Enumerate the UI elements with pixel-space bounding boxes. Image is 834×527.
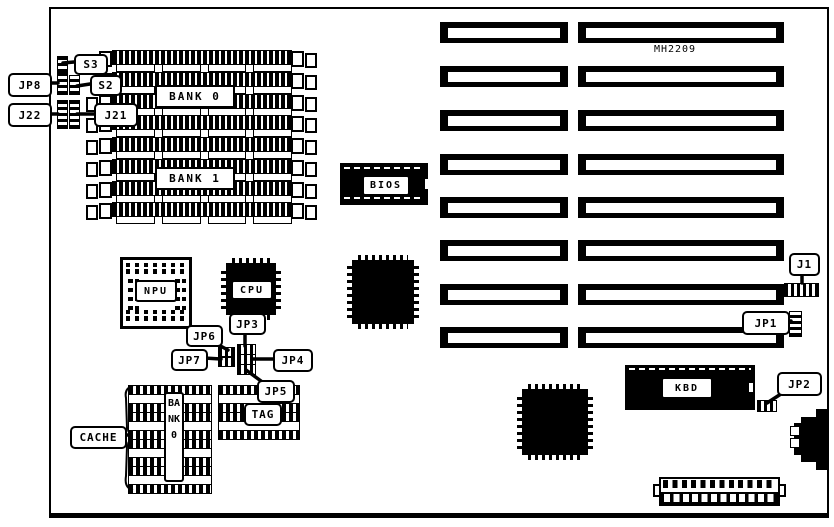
bios-chip: BIOS xyxy=(340,163,428,205)
board-part-number: MH2209 xyxy=(640,44,710,55)
cache-bank0-vertical-label: BANK0 xyxy=(164,392,184,482)
jp8-jumper xyxy=(57,73,68,95)
jp3-callout: JP3 xyxy=(229,313,266,335)
kbd-label: KBD xyxy=(661,377,713,399)
isa-slot-segment xyxy=(578,240,784,261)
io-controller-chip xyxy=(522,389,588,455)
isa-slot-segment xyxy=(578,110,784,131)
simm-socket-row xyxy=(86,50,318,73)
kbd-chip: KBD xyxy=(625,365,755,410)
din-keyboard-connector xyxy=(801,417,819,462)
j1-connector xyxy=(784,283,819,297)
j22-jumper xyxy=(57,100,68,129)
npu-label: NPU xyxy=(135,280,177,302)
isa-slot-segment xyxy=(440,22,568,43)
s3-jumper xyxy=(57,56,68,73)
j1-callout: J1 xyxy=(789,253,820,276)
jp7-callout: JP7 xyxy=(171,349,208,371)
j22-callout: J22 xyxy=(8,103,52,127)
jp5-callout: JP5 xyxy=(257,380,295,403)
j21-jumper xyxy=(69,100,80,129)
bios-label: BIOS xyxy=(362,175,410,196)
isa-slot-segment xyxy=(440,284,568,305)
isa-slot-segment xyxy=(578,22,784,43)
din-pin xyxy=(790,426,800,436)
isa-slot-segment xyxy=(440,66,568,87)
cpu-chip: CPU xyxy=(226,263,276,315)
isa-slot-segment xyxy=(440,327,568,348)
jp4-callout: JP4 xyxy=(273,349,313,372)
isa-slot-segment xyxy=(440,240,568,261)
isa-slot-segment xyxy=(578,197,784,218)
s3-callout: S3 xyxy=(74,54,108,75)
jp5-jumper xyxy=(237,364,256,375)
simm-socket-row xyxy=(86,202,318,225)
s2-callout: S2 xyxy=(90,75,122,96)
isa-slot-segment xyxy=(440,110,568,131)
isa-slot-segment xyxy=(440,197,568,218)
motherboard-diagram: BANK 0 BANK 1 JP8 J22 S3 S2 J21 BIOS CPU… xyxy=(0,0,834,527)
tag-label: TAG xyxy=(244,403,282,426)
s2-jumper xyxy=(69,75,80,95)
npu-socket: NPU xyxy=(120,257,192,329)
jp6-jumper xyxy=(218,347,235,357)
isa-slot-segment xyxy=(578,154,784,175)
jp7-jumper xyxy=(218,357,235,367)
chipset-chip xyxy=(352,260,414,324)
j21-callout: J21 xyxy=(94,103,138,127)
isa-slot-segment xyxy=(578,66,784,87)
power-connector xyxy=(659,477,780,506)
jp2-jumper xyxy=(757,400,777,412)
jp1-callout: JP1 xyxy=(742,311,790,335)
din-pin xyxy=(790,438,800,448)
jp8-callout: JP8 xyxy=(8,73,52,97)
isa-slot-segment xyxy=(578,284,784,305)
cache-callout: CACHE xyxy=(70,426,127,449)
simm-socket-row xyxy=(86,137,318,160)
jp1-jumper xyxy=(789,311,802,337)
isa-slot-segment xyxy=(440,154,568,175)
jp2-callout: JP2 xyxy=(777,372,822,396)
bank1-label: BANK 1 xyxy=(155,167,235,190)
jp6-callout: JP6 xyxy=(186,325,223,347)
cpu-label: CPU xyxy=(231,280,273,300)
bank0-label: BANK 0 xyxy=(155,85,235,108)
